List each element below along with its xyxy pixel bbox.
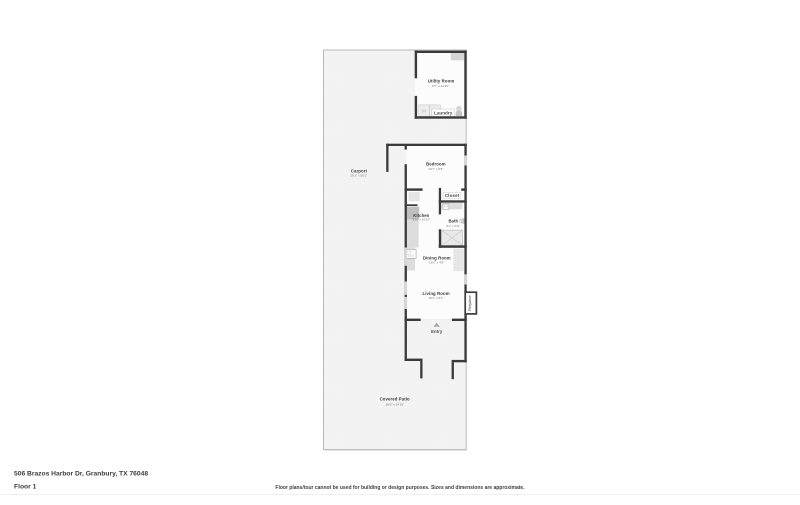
svg-text:4'1" x 4'11": 4'1" x 4'11" [446,224,460,228]
svg-text:Kitchen: Kitchen [413,213,429,218]
svg-text:16'1" x 8'1": 16'1" x 8'1" [428,296,443,300]
svg-text:Laundry: Laundry [434,111,453,116]
svg-text:Living Room: Living Room [423,291,450,296]
svg-text:Bath: Bath [448,219,458,224]
svg-text:8'7" x 12'10": 8'7" x 12'10" [432,84,449,88]
svg-text:Utility Room: Utility Room [428,79,455,84]
svg-text:Bedroom: Bedroom [426,162,446,167]
svg-text:Floor 1: Floor 1 [14,484,37,491]
svg-text:16'1" x 4'9": 16'1" x 4'9" [429,261,444,265]
svg-text:Covered Patio: Covered Patio [380,397,410,402]
svg-text:Fireplace: Fireplace [468,295,472,311]
svg-text:5'11" x 16'10": 5'11" x 16'10" [413,218,430,222]
svg-text:28'6" x 24'10": 28'6" x 24'10" [386,402,405,406]
svg-text:Carport: Carport [351,168,368,173]
svg-text:Dining Room: Dining Room [423,255,451,260]
svg-text:506 Brazos Harbor Dr, Granbury: 506 Brazos Harbor Dr, Granbury, TX 76048 [14,471,148,478]
svg-text:Closet: Closet [445,193,460,198]
svg-text:29'1" x 50'1": 29'1" x 50'1" [350,174,367,178]
svg-text:W: W [422,109,427,114]
svg-text:10'7" x 8'6": 10'7" x 8'6" [428,167,443,171]
svg-text:Floor plans/tour cannot be use: Floor plans/tour cannot be used for buil… [275,485,525,491]
svg-text:Entry: Entry [431,329,443,334]
